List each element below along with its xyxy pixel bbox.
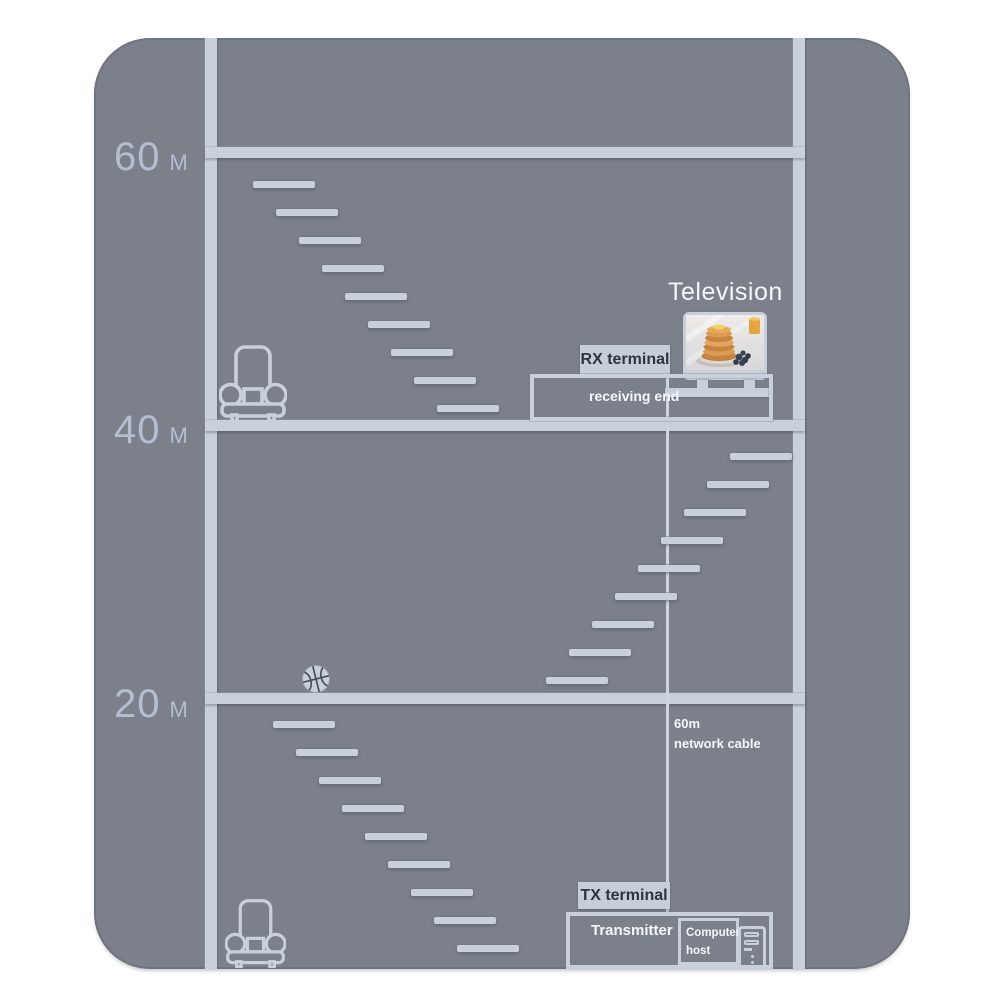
television-title: Television	[668, 278, 783, 307]
middle-staircase-step	[684, 509, 746, 516]
upper-staircase-step	[345, 293, 407, 300]
lower-staircase-step	[319, 777, 381, 784]
tv-screen	[686, 315, 764, 370]
upper-staircase-step	[391, 349, 453, 356]
computer-host-line2: host	[686, 942, 736, 960]
lower-staircase-step	[342, 805, 404, 812]
upper-staircase-step	[368, 321, 430, 328]
cable-length-line1: 60m	[674, 714, 761, 734]
receiving-end-label: receiving end	[589, 388, 679, 404]
floor-label-unit: M	[170, 425, 188, 447]
armchair-graphic	[225, 898, 286, 968]
floor-label-unit: M	[170, 152, 188, 174]
middle-staircase-step	[638, 565, 700, 572]
upper-staircase-step	[414, 377, 476, 384]
tower-led	[751, 961, 754, 964]
armchair-graphic	[219, 344, 287, 422]
lower-staircase-step	[296, 749, 358, 756]
television-icon	[683, 312, 767, 380]
tower-slot	[744, 932, 759, 937]
floor-label-unit: M	[170, 699, 188, 721]
tower-led	[751, 955, 754, 958]
tx-terminal-label: TX terminal	[578, 882, 670, 909]
floor-line-40m	[205, 420, 805, 431]
middle-staircase-step	[661, 537, 723, 544]
scene: 60 M 40 M 20 M	[0, 0, 1000, 1000]
middle-staircase-step	[615, 593, 677, 600]
middle-staircase-step	[592, 621, 654, 628]
basketball-icon	[298, 661, 334, 697]
computer-tower-icon	[738, 926, 766, 969]
tower-mini-slot	[744, 948, 752, 951]
lower-staircase-step	[411, 889, 473, 896]
cable-length-label: 60m network cable	[674, 714, 761, 754]
upper-staircase-step	[253, 181, 315, 188]
basketball-graphic	[298, 661, 334, 697]
middle-staircase-step	[707, 481, 769, 488]
floor-label-60m: 60 M	[114, 137, 204, 177]
building: 60 M 40 M 20 M	[94, 38, 910, 969]
floor-label-20m: 20 M	[114, 684, 204, 724]
floor-label-value: 60	[114, 137, 161, 177]
upper-staircase-step	[322, 265, 384, 272]
lower-staircase-step	[434, 917, 496, 924]
middle-staircase-step	[569, 649, 631, 656]
lower-staircase-step	[273, 721, 335, 728]
upper-staircase-step	[276, 209, 338, 216]
armchair-icon	[225, 898, 286, 968]
tower-slot	[744, 940, 759, 945]
right-wall	[793, 38, 805, 969]
floor-label-value: 20	[114, 684, 161, 724]
floor-line-60m	[205, 147, 805, 158]
middle-staircase-step	[546, 677, 608, 684]
computer-host-line1: Computer	[686, 924, 736, 942]
network-cable-line	[666, 378, 669, 912]
cable-length-line2: network cable	[674, 734, 761, 754]
floor-label-value: 40	[114, 410, 161, 450]
rx-table: receiving end	[530, 374, 773, 421]
transmitter-label: Transmitter	[591, 922, 673, 939]
lower-staircase-step	[457, 945, 519, 952]
pancake-image	[686, 315, 764, 370]
lower-staircase-step	[365, 833, 427, 840]
middle-staircase-step	[730, 453, 792, 460]
computer-host-box: Computer host	[678, 918, 739, 965]
upper-staircase-step	[299, 237, 361, 244]
upper-staircase-step	[437, 405, 499, 412]
floor-label-40m: 40 M	[114, 410, 204, 450]
lower-staircase-step	[388, 861, 450, 868]
floor-line-20m	[205, 693, 805, 704]
rx-terminal-label: RX terminal	[580, 345, 670, 374]
armchair-icon	[219, 344, 287, 422]
left-wall	[205, 38, 217, 969]
